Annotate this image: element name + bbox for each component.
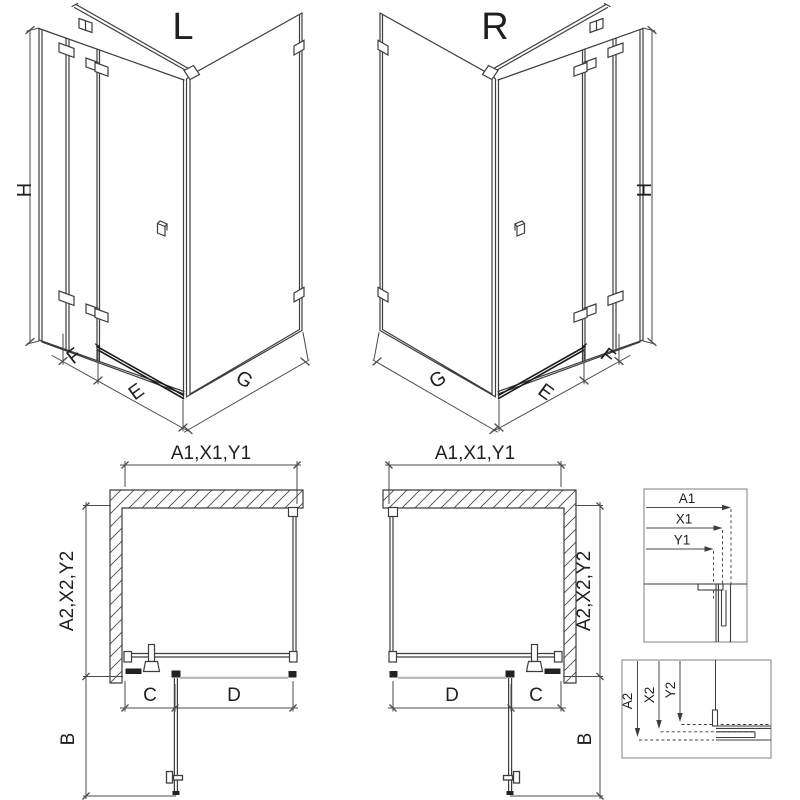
iso-left-dim-e: E (125, 379, 149, 405)
plan-left-dim-depth: A2,X2,Y2 (57, 551, 78, 631)
detail-depth-dim-y2: Y2 (663, 682, 678, 699)
plan-right-dim-b: B (575, 733, 596, 746)
arrowhead-a1 (722, 505, 731, 510)
iso-view-right-geometry (373, 4, 656, 434)
plan-right-dim-width: A1,X1,Y1 (435, 443, 515, 464)
drawing-svg: L H F E G R H F E G A1,X1,Y1 A2,X2,Y2 C … (0, 0, 800, 800)
iso-left-view-label: L (172, 6, 193, 48)
arrowhead-a2 (635, 728, 640, 737)
plan-left-dim-b: B (58, 733, 79, 746)
iso-right-dim-e: E (534, 379, 558, 405)
detail-width-dim-x1: X1 (676, 512, 693, 527)
detail-depth-dim-x2: X2 (642, 687, 657, 704)
plan-left-dim-c: C (143, 685, 157, 706)
arrowhead-x2 (656, 720, 661, 729)
detail-width-dim-a1: A1 (679, 491, 696, 506)
iso-right-dim-f: F (596, 344, 619, 369)
plan-left-dim-width: A1,X1,Y1 (171, 443, 251, 464)
iso-right-view-label: R (481, 6, 508, 48)
arrowhead-y1 (705, 546, 714, 551)
plan-left-dim-d: D (227, 685, 241, 706)
detail-depth-dim-a2: A2 (620, 693, 635, 710)
iso-view-left-geometry (26, 4, 309, 434)
detail-width-dim-y1: Y1 (674, 533, 691, 548)
iso-left-dim-h: H (14, 183, 36, 197)
plan-right-dim-depth: A2,X2,Y2 (574, 551, 595, 631)
plan-right-dim-c: C (529, 685, 543, 706)
technical-drawing-shower-enclosure: L H F E G R H F E G A1,X1,Y1 A2,X2,Y2 C … (0, 0, 800, 800)
detail-box-depth (622, 660, 771, 758)
detail-box-width (644, 489, 747, 642)
plan-right-dim-d: D (445, 685, 459, 706)
iso-right-dim-h: H (634, 183, 656, 197)
arrowhead-x1 (714, 525, 723, 530)
arrowhead-y2 (677, 713, 682, 722)
iso-left-dim-g: G (232, 366, 257, 393)
iso-right-dim-g: G (426, 366, 451, 393)
